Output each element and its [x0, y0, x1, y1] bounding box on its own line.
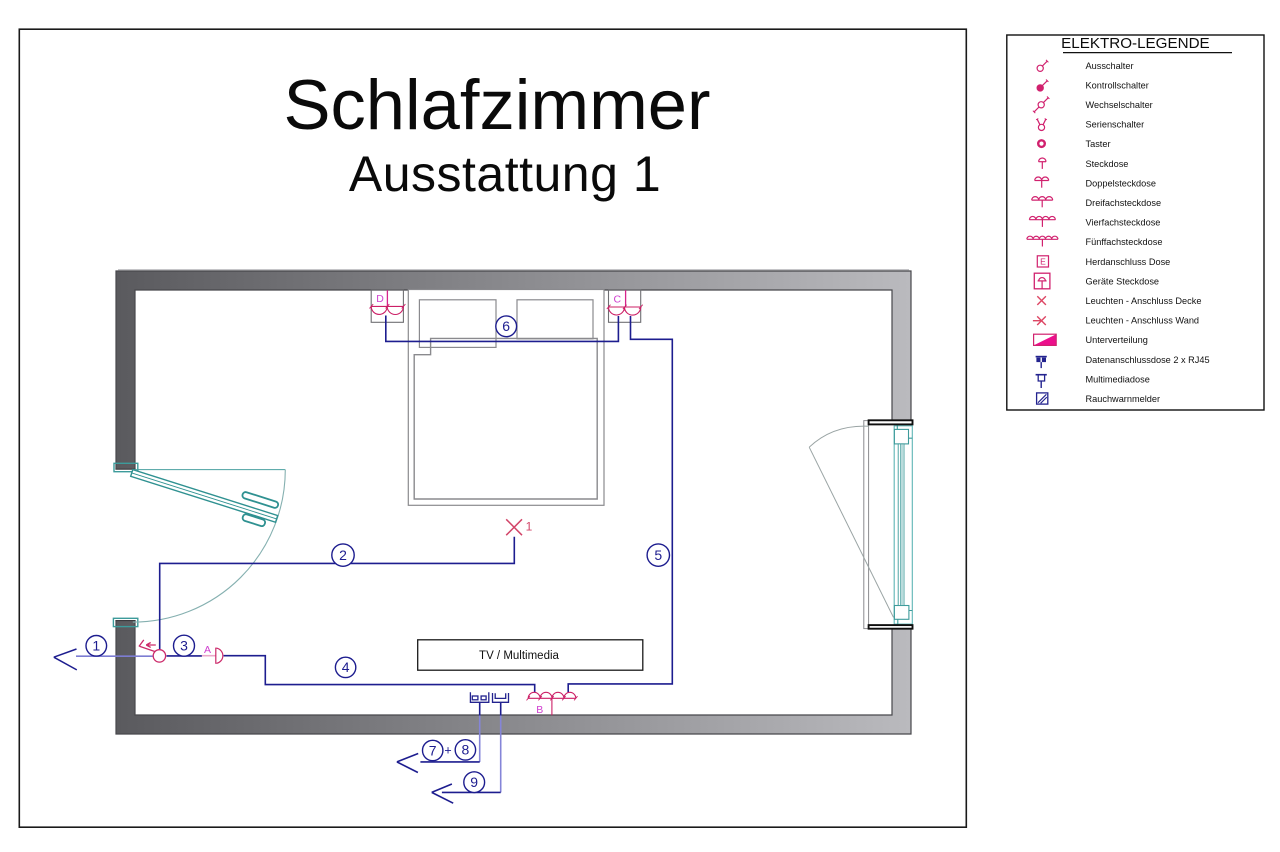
svg-text:1: 1: [92, 638, 100, 654]
svg-text:C: C: [614, 293, 622, 305]
svg-text:Geräte Steckdose: Geräte Steckdose: [1086, 276, 1160, 286]
svg-text:3: 3: [180, 638, 188, 654]
svg-text:B: B: [536, 704, 543, 716]
svg-text:Kontrollschalter: Kontrollschalter: [1086, 80, 1149, 90]
svg-text:Multimediadose: Multimediadose: [1086, 374, 1150, 384]
svg-text:Vierfachsteckdose: Vierfachsteckdose: [1086, 218, 1161, 228]
svg-text:Fünffachsteckdose: Fünffachsteckdose: [1086, 237, 1163, 247]
svg-text:ELEKTRO-LEGENDE: ELEKTRO-LEGENDE: [1061, 35, 1210, 52]
svg-text:Leuchten - Anschluss Decke: Leuchten - Anschluss Decke: [1086, 296, 1202, 306]
svg-text:Unterverteilung: Unterverteilung: [1086, 335, 1148, 345]
svg-text:7: 7: [429, 742, 437, 758]
svg-text:6: 6: [502, 318, 510, 334]
svg-text:Steckdose: Steckdose: [1086, 159, 1129, 169]
svg-text:Ausschalter: Ausschalter: [1086, 61, 1134, 71]
svg-text:E: E: [1040, 257, 1046, 267]
svg-text:+: +: [444, 744, 451, 758]
svg-text:4: 4: [342, 659, 350, 675]
svg-text:9: 9: [470, 774, 478, 790]
svg-text:Herdanschluss Dose: Herdanschluss Dose: [1086, 257, 1171, 267]
svg-text:Ausstattung 1: Ausstattung 1: [349, 146, 661, 202]
svg-text:2: 2: [339, 547, 347, 563]
svg-text:Serienschalter: Serienschalter: [1086, 120, 1145, 130]
svg-text:TV / Multimedia: TV / Multimedia: [479, 650, 559, 662]
svg-text:1: 1: [526, 519, 533, 533]
svg-text:A: A: [204, 644, 211, 656]
svg-text:D: D: [376, 293, 384, 305]
svg-text:8: 8: [462, 742, 470, 758]
svg-text:Taster: Taster: [1086, 139, 1111, 149]
svg-text:Schlafzimmer: Schlafzimmer: [284, 65, 711, 144]
svg-text:Rauchwarnmelder: Rauchwarnmelder: [1086, 394, 1161, 404]
svg-text:Datenanschlussdose 2 x RJ45: Datenanschlussdose 2 x RJ45: [1086, 355, 1210, 365]
svg-text:5: 5: [654, 547, 662, 563]
svg-text:Wechselschalter: Wechselschalter: [1086, 100, 1153, 110]
svg-text:Dreifachsteckdose: Dreifachsteckdose: [1086, 198, 1162, 208]
svg-text:Doppelsteckdose: Doppelsteckdose: [1086, 178, 1156, 188]
svg-text:Leuchten - Anschluss Wand: Leuchten - Anschluss Wand: [1086, 316, 1200, 326]
